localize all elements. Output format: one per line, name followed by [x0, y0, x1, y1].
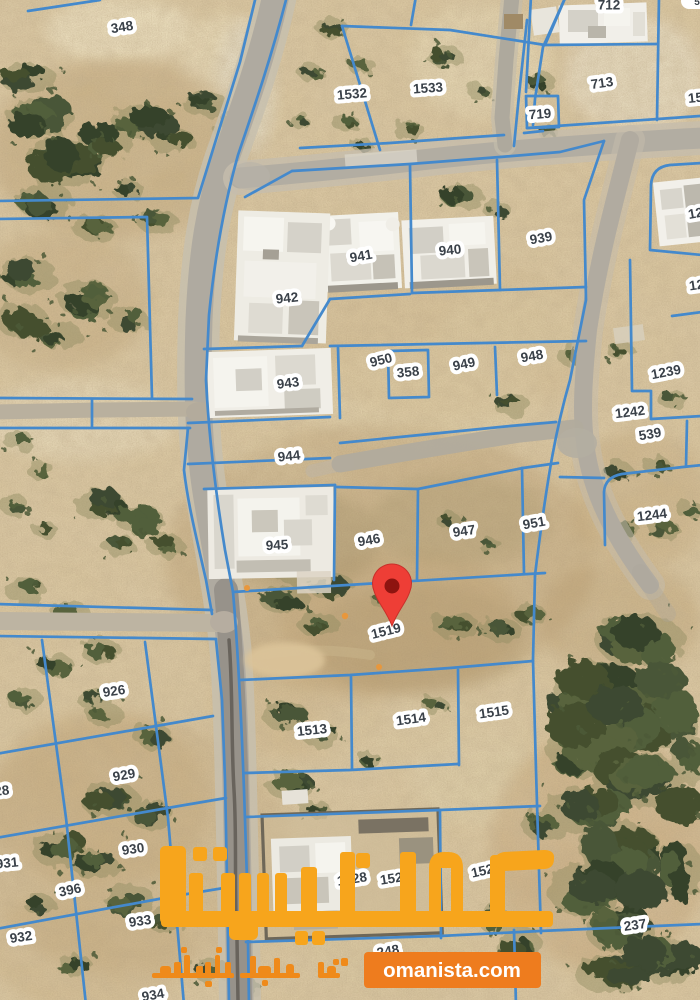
svg-text:712: 712	[598, 0, 621, 13]
svg-text:713: 713	[590, 74, 615, 92]
svg-text:719: 719	[528, 106, 552, 123]
svg-text:930: 930	[121, 840, 145, 858]
svg-text:933: 933	[128, 912, 153, 930]
svg-text:omanista.com: omanista.com	[383, 959, 521, 982]
svg-text:1513: 1513	[296, 721, 328, 739]
svg-text:947: 947	[452, 522, 476, 540]
svg-text:940: 940	[438, 241, 462, 258]
svg-text:1530: 1530	[687, 88, 700, 106]
svg-text:1533: 1533	[412, 79, 443, 96]
svg-text:942: 942	[275, 289, 299, 306]
svg-text:943: 943	[276, 374, 301, 392]
svg-text:944: 944	[277, 447, 301, 464]
svg-text:945: 945	[265, 537, 289, 553]
svg-text:237: 237	[623, 916, 647, 934]
svg-text:931: 931	[0, 854, 19, 871]
svg-text:926: 926	[102, 682, 127, 700]
svg-text:1532: 1532	[336, 85, 367, 103]
svg-text:358: 358	[396, 363, 420, 380]
svg-text:5: 5	[694, 0, 700, 8]
svg-text:932: 932	[9, 928, 33, 946]
